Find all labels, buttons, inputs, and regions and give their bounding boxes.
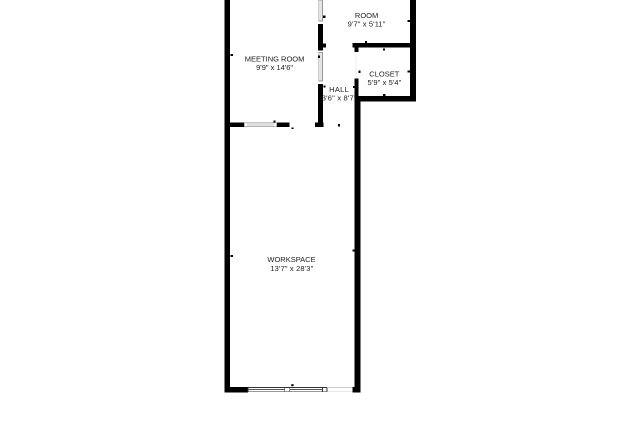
svg-text:3'6" x 8'7": 3'6" x 8'7" [322,93,357,102]
svg-text:WORKSPACE: WORKSPACE [267,255,315,264]
svg-text:CLOSET: CLOSET [369,69,399,78]
svg-text:13'7" x 28'3": 13'7" x 28'3" [270,264,313,273]
svg-text:5'9" x 5'4": 5'9" x 5'4" [368,78,402,87]
svg-text:9'7" x 5'11": 9'7" x 5'11" [348,19,386,28]
svg-text:9'9" x 14'6": 9'9" x 14'6" [256,63,293,72]
